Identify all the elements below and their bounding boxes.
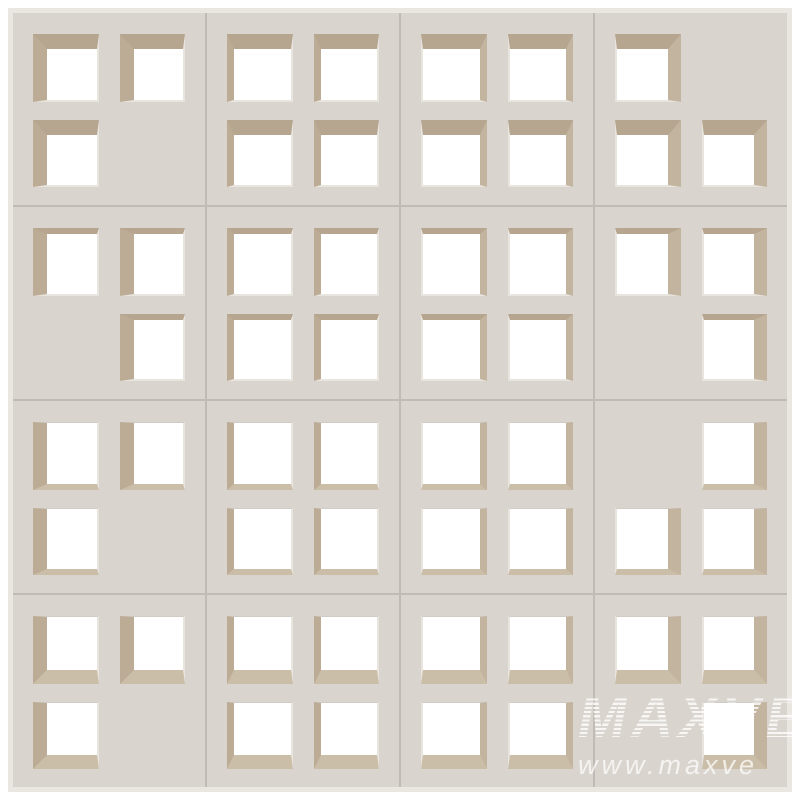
block-hole	[314, 314, 380, 382]
block-solid-cell	[120, 508, 186, 576]
block-hole	[421, 702, 487, 770]
block-hole	[227, 616, 293, 684]
block-hole	[421, 508, 487, 576]
block-hole	[508, 314, 574, 382]
block-solid-cell	[615, 422, 681, 490]
block-r1c3	[595, 207, 787, 399]
block-hole	[615, 616, 681, 684]
block-hole	[508, 228, 574, 296]
block-hole	[314, 34, 380, 102]
block-hole	[421, 120, 487, 188]
block-hole	[314, 508, 380, 576]
block-hole	[227, 702, 293, 770]
block-hole	[421, 314, 487, 382]
block-r3c3	[595, 595, 787, 787]
block-solid-cell	[615, 702, 681, 770]
block-hole	[227, 228, 293, 296]
render-canvas: MAXVE www.maxve	[0, 0, 800, 800]
block-hole	[615, 34, 681, 102]
block-hole	[702, 314, 768, 382]
block-hole	[421, 422, 487, 490]
block-hole	[508, 422, 574, 490]
block-hole	[314, 228, 380, 296]
block-hole	[33, 422, 99, 490]
block-hole	[508, 616, 574, 684]
block-hole	[227, 120, 293, 188]
block-hole	[120, 228, 186, 296]
block-r0c0	[13, 13, 205, 205]
block-hole	[314, 422, 380, 490]
block-hole	[314, 702, 380, 770]
block-hole	[421, 228, 487, 296]
block-hole	[120, 422, 186, 490]
block-hole	[227, 422, 293, 490]
block-hole	[702, 616, 768, 684]
block-hole	[421, 34, 487, 102]
block-hole	[508, 702, 574, 770]
block-hole	[508, 34, 574, 102]
block-r0c1	[207, 13, 399, 205]
block-hole	[33, 120, 99, 188]
block-hole	[227, 508, 293, 576]
block-hole	[314, 616, 380, 684]
block-hole	[615, 120, 681, 188]
block-hole	[227, 34, 293, 102]
block-r0c3	[595, 13, 787, 205]
block-r1c2	[401, 207, 593, 399]
block-solid-cell	[120, 702, 186, 770]
block-r0c2	[401, 13, 593, 205]
block-hole	[702, 120, 768, 188]
block-hole	[33, 702, 99, 770]
block-hole	[33, 34, 99, 102]
block-hole	[615, 228, 681, 296]
block-hole	[615, 508, 681, 576]
block-solid-cell	[120, 120, 186, 188]
block-hole	[33, 228, 99, 296]
block-hole	[508, 120, 574, 188]
block-solid-cell	[615, 314, 681, 382]
block-r3c2	[401, 595, 593, 787]
block-hole	[702, 508, 768, 576]
block-hole	[33, 508, 99, 576]
block-hole	[227, 314, 293, 382]
block-hole	[120, 616, 186, 684]
block-r2c3	[595, 401, 787, 593]
block-hole	[421, 616, 487, 684]
block-hole	[314, 120, 380, 188]
block-hole	[702, 702, 768, 770]
block-hole	[508, 508, 574, 576]
block-solid-cell	[33, 314, 99, 382]
block-hole	[33, 616, 99, 684]
block-r2c2	[401, 401, 593, 593]
block-r1c0	[13, 207, 205, 399]
block-hole	[702, 422, 768, 490]
block-hole	[702, 228, 768, 296]
block-wall	[8, 8, 792, 792]
block-r3c1	[207, 595, 399, 787]
block-r1c1	[207, 207, 399, 399]
block-hole	[120, 314, 186, 382]
block-r3c0	[13, 595, 205, 787]
block-solid-cell	[702, 34, 768, 102]
block-r2c1	[207, 401, 399, 593]
block-hole	[120, 34, 186, 102]
block-r2c0	[13, 401, 205, 593]
